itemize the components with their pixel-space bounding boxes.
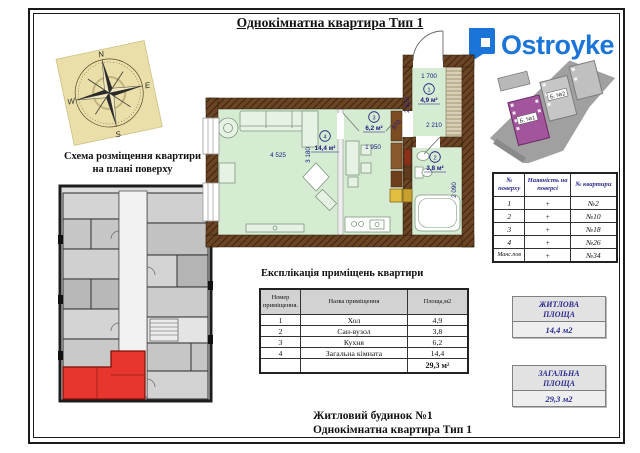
dim-hall-niche: 2 210	[426, 122, 442, 129]
dim-kitchen-width: 1 950	[365, 144, 381, 151]
room-area-cell: 14,4	[407, 348, 468, 359]
room-area-cell: 4,9	[407, 315, 468, 326]
room-name-cell: Загальна кімната	[300, 348, 407, 359]
room-number-cell: 3	[260, 337, 300, 348]
availability-mark: +	[525, 210, 570, 223]
expl-header-name: Назва приміщення	[300, 289, 407, 315]
room-area-cell: 3,8	[407, 326, 468, 337]
bathroom-sink	[417, 152, 429, 161]
explication-title: Експлікація приміщень квартири	[261, 268, 423, 279]
availability-mark: +	[525, 236, 570, 249]
floor-number: 2	[493, 210, 525, 223]
dim-living-width: 4 525	[270, 152, 286, 159]
dim-hall-width: 1 700	[421, 73, 437, 80]
schema-stairs	[150, 319, 178, 341]
apartment-number: №10	[570, 210, 617, 223]
expl-header-area: Площа,м2	[407, 289, 468, 315]
floors-table-header: № поверху Наявність на поверсі № квартир…	[493, 173, 617, 197]
explication-row: 1 Хол 4,9	[260, 315, 468, 326]
floors-row: 3 + №18	[493, 223, 617, 236]
apartment-number: №18	[570, 223, 617, 236]
brand-name: Ostroyke	[501, 30, 614, 61]
floors-header-floor: № поверху	[493, 173, 525, 197]
footer-line1: Житловий будинок №1	[313, 409, 573, 423]
floors-row: Манс.пов + №34	[493, 249, 617, 263]
compass-rose: N W S E	[50, 33, 168, 151]
empty-cell	[300, 359, 407, 374]
dim-hall-depth: 2 620	[404, 97, 411, 113]
room-1-number: 1	[427, 88, 430, 94]
badge-title-line1: ЗАГАЛЬНА	[515, 369, 603, 379]
room-3-number: 3	[372, 116, 375, 122]
apartment-number: №34	[570, 249, 617, 263]
dim-bath-depth: 2 090	[451, 182, 458, 198]
explication-row: 2 Сан-вузол 3,8	[260, 326, 468, 337]
room-2-number: 2	[433, 156, 436, 162]
explication-total-row: 29,3 м²	[260, 359, 468, 374]
site-map: Б. №1 Б. №2	[483, 60, 626, 163]
floors-header-apartment: № квартири	[570, 173, 617, 197]
apartment-number: №2	[570, 197, 617, 210]
floor-number: 1	[493, 197, 525, 210]
room-4-number: 4	[323, 135, 326, 141]
floors-row: 1 + №2	[493, 197, 617, 210]
footer-block: Житловий будинок №1 Однокімнатна квартир…	[313, 409, 573, 437]
total-area-cell: 29,3 м²	[407, 359, 468, 374]
room-1-area: 4,9 м²	[420, 97, 437, 104]
room-name-cell: Хол	[300, 315, 407, 326]
hall-wardrobe	[446, 67, 462, 137]
floors-row: 2 + №10	[493, 210, 617, 223]
room-area-cell: 6,2	[407, 337, 468, 348]
room-number-cell: 1	[260, 315, 300, 326]
room-name-cell: Кухня	[300, 337, 407, 348]
floor-number: 3	[493, 223, 525, 236]
expl-header-number: Номер приміщення.	[260, 289, 300, 315]
explication-table: Номер приміщення. Назва приміщення Площа…	[259, 288, 469, 374]
side-table	[219, 163, 235, 183]
brand-logo: Ostroyke	[466, 26, 614, 64]
total-area-badge: ЗАГАЛЬНА ПЛОЩА 29,3 м2	[512, 365, 606, 407]
floors-header-availability: Наявність на поверсі	[525, 173, 570, 197]
availability-mark: +	[525, 197, 570, 210]
room-number-cell: 2	[260, 326, 300, 337]
floor-number: Манс.пов	[493, 249, 525, 263]
living-area-value: 14,4 м2	[513, 321, 605, 337]
availability-mark: +	[525, 223, 570, 236]
badge-title-line1: ЖИТЛОВА	[515, 300, 603, 310]
floors-row: 4 + №26	[493, 236, 617, 249]
kitchen-table	[346, 141, 359, 175]
explication-row: 4 Загальна кімната 14,4	[260, 348, 468, 359]
utility-meters	[390, 189, 412, 202]
availability-mark: +	[525, 249, 570, 263]
room-3-area: 6,2 м²	[365, 125, 382, 132]
room-2-area: 3,8 м²	[426, 165, 443, 172]
floor-schema	[57, 183, 214, 405]
apartment-plan: 4 525 3 180 4 14,4 м² 3 6,2 м² 1 950 1 7…	[198, 25, 483, 260]
room-number-cell: 4	[260, 348, 300, 359]
floors-table: № поверху Наявність на поверсі № квартир…	[492, 172, 618, 263]
empty-cell	[260, 359, 300, 374]
badge-title-line2: ПЛОЩА	[515, 379, 603, 389]
apartment-number: №26	[570, 236, 617, 249]
floor-number: 4	[493, 236, 525, 249]
floorplan-sheet: { "page": { "title": "Однокімнатна кварт…	[0, 0, 640, 453]
total-area-value: 29,3 м2	[513, 390, 605, 406]
badge-title-line2: ПЛОЩА	[515, 310, 603, 320]
living-area-badge: ЖИТЛОВА ПЛОЩА 14,4 м2	[512, 296, 606, 338]
dim-living-depth: 3 180	[305, 147, 312, 163]
footer-line2: Однокімнатна квартира Тип 1	[313, 423, 573, 437]
explication-row: 3 Кухня 6,2	[260, 337, 468, 348]
room-name-cell: Сан-вузол	[300, 326, 407, 337]
explication-header: Номер приміщення. Назва приміщення Площа…	[260, 289, 468, 315]
room-4-area: 14,4 м²	[315, 145, 336, 152]
